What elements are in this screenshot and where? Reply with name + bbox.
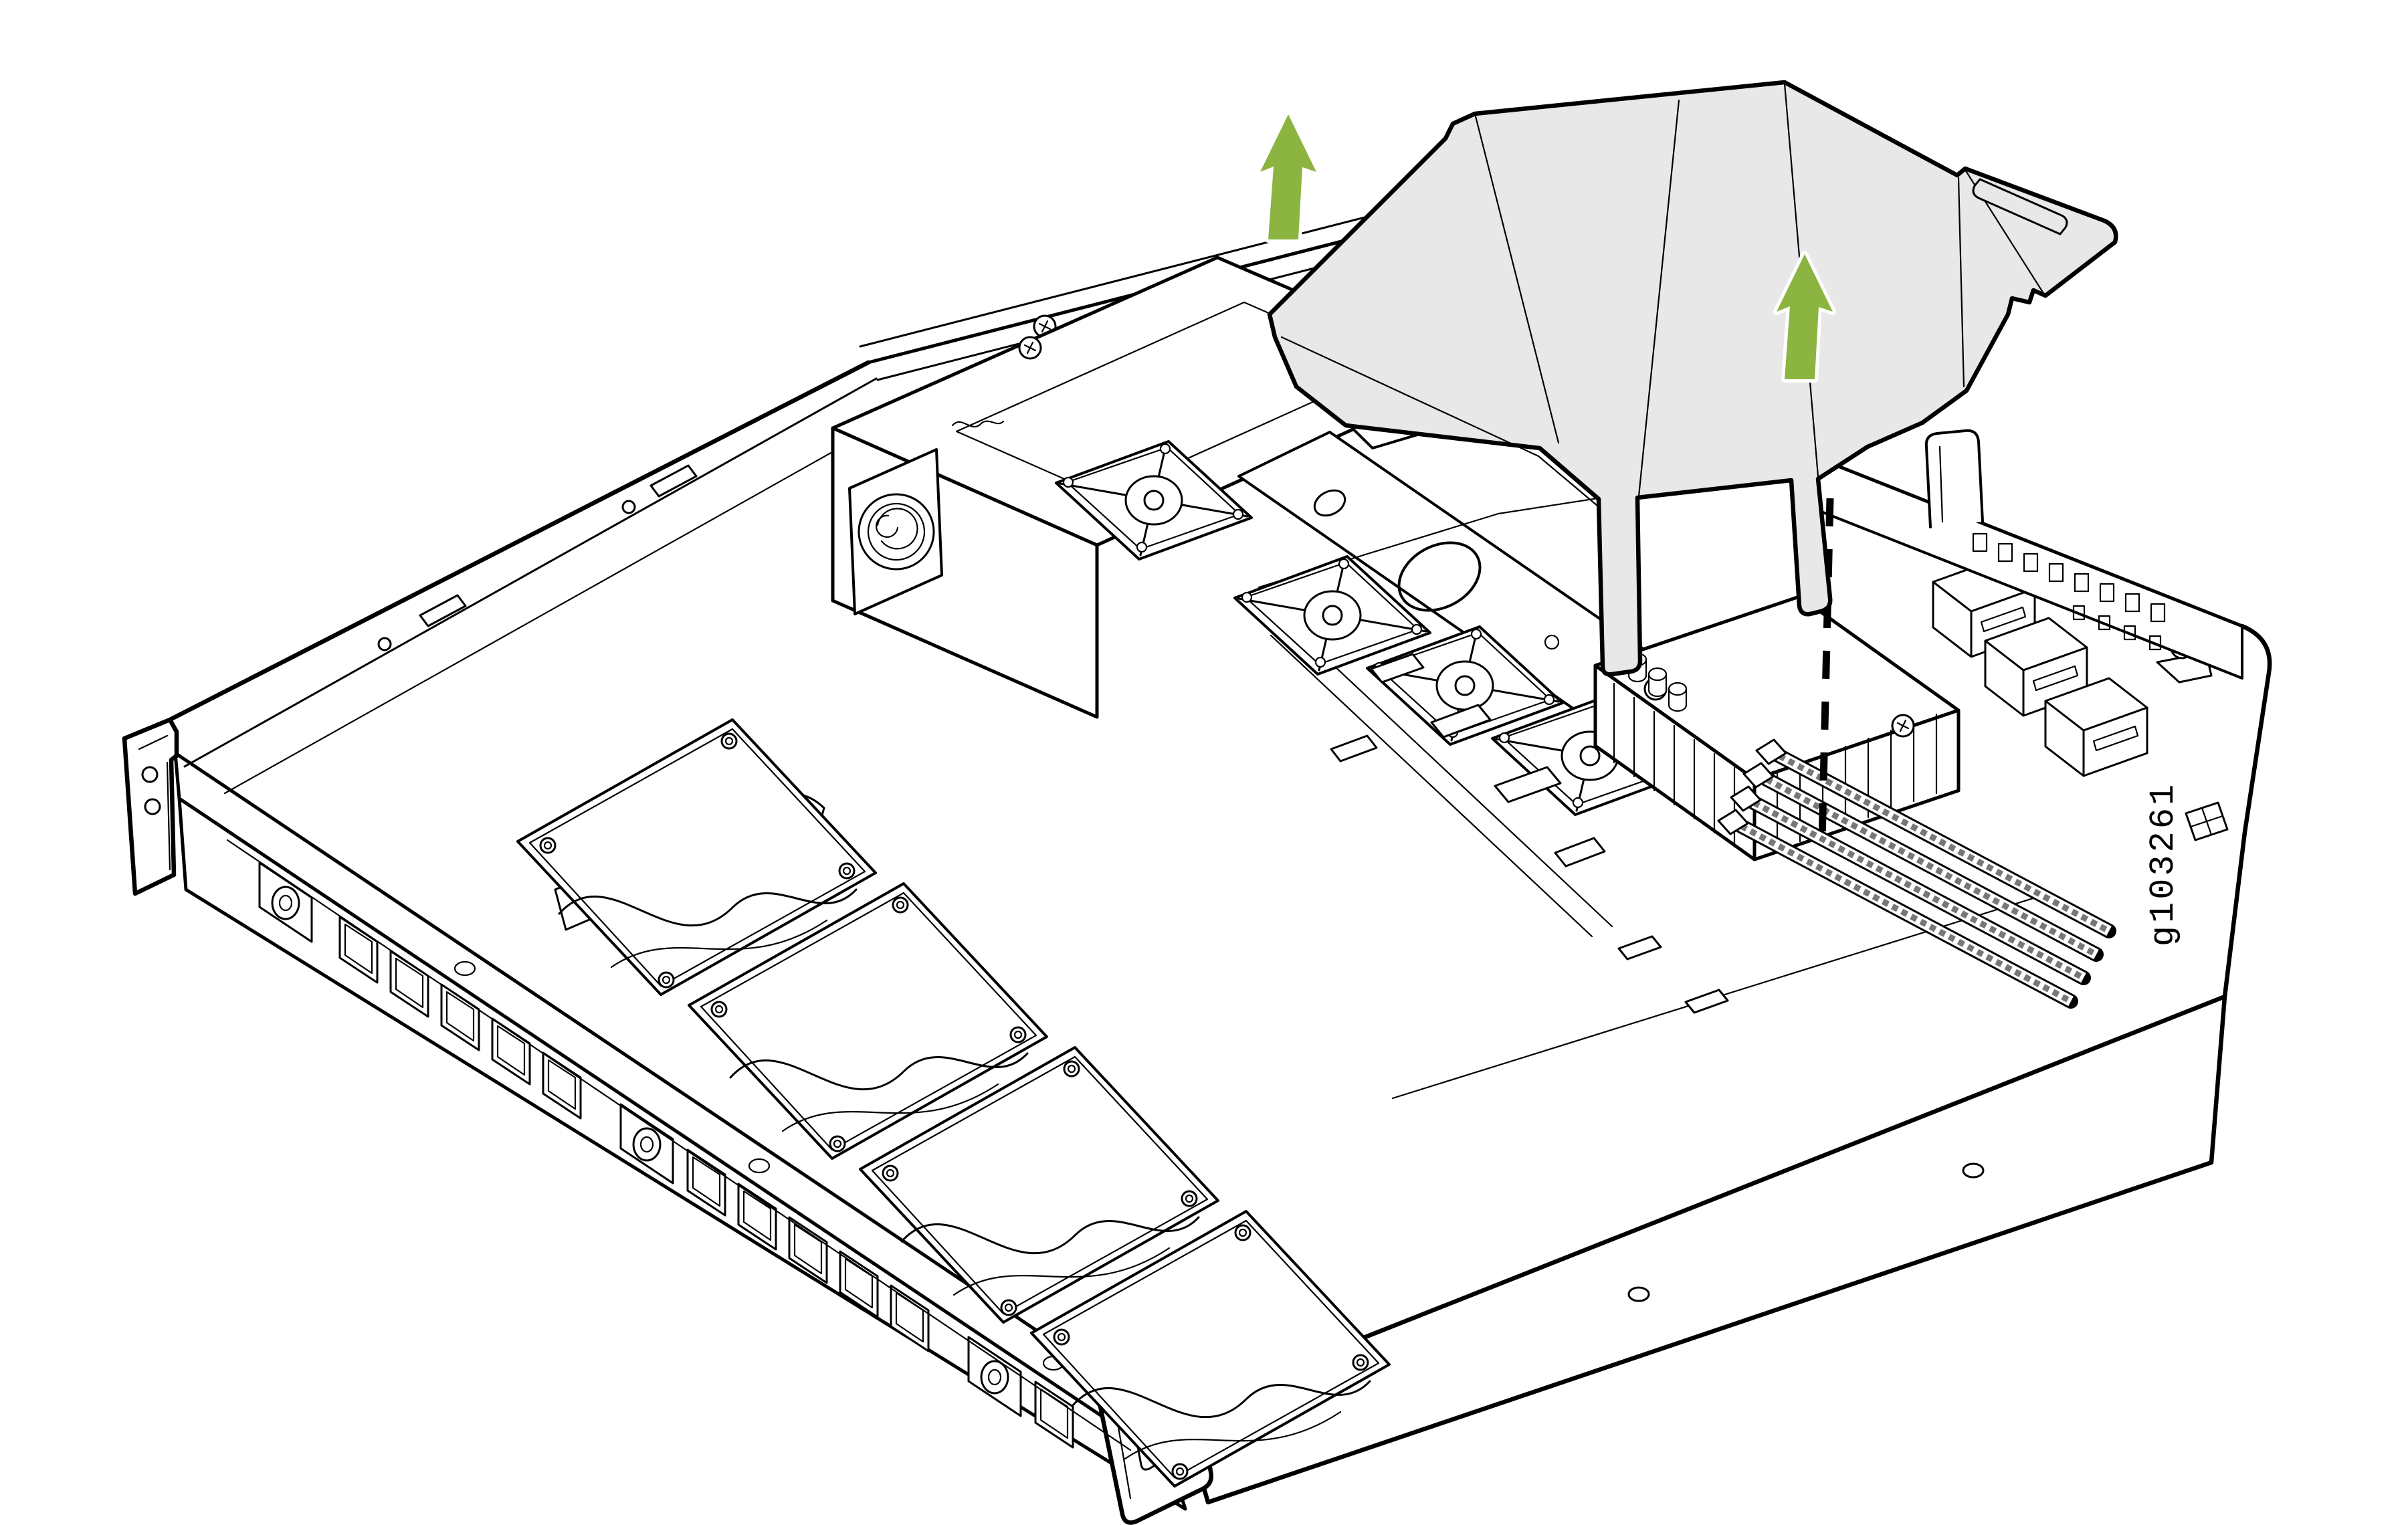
figure-id: g103261 — [2144, 782, 2183, 946]
up-arrow-icon — [1260, 114, 1316, 239]
left-rack-ear — [124, 720, 177, 894]
psu-screw — [1019, 337, 1041, 359]
hardware-illustration: g103261 — [0, 0, 2408, 1525]
rear-bracket — [1926, 431, 1983, 527]
illustration-page: g103261 — [0, 0, 2408, 1525]
heatsink-screw — [1892, 715, 1914, 736]
